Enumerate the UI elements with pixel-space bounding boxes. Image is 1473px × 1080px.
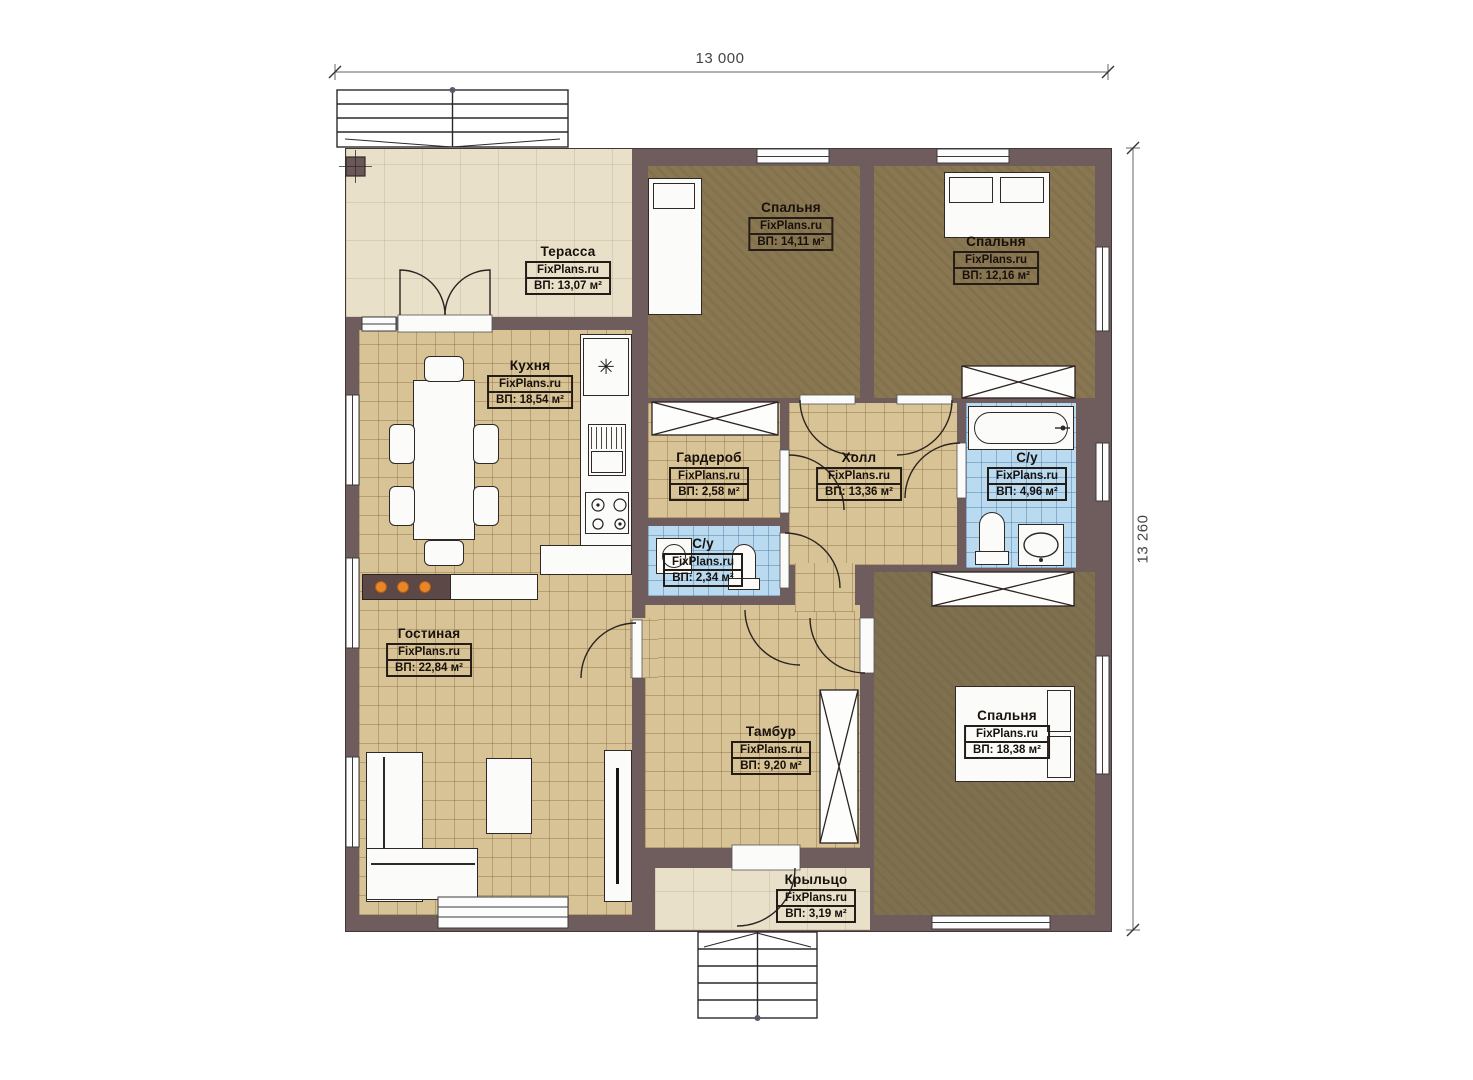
room-area: ВП: 4,96 м² — [989, 485, 1065, 499]
washbasin-icon — [1018, 524, 1064, 566]
room-label-vestibule: Тамбур FixPlans.ruВП: 9,20 м² — [731, 724, 811, 775]
brand-watermark: FixPlans.ru — [778, 891, 854, 907]
room-area: ВП: 9,20 м² — [733, 759, 809, 773]
room-name: С/у — [987, 450, 1067, 465]
room-area: ВП: 2,34 м² — [665, 571, 741, 585]
chair-icon — [473, 486, 499, 526]
room-info-box: FixPlans.ruВП: 13,07 м² — [525, 261, 611, 295]
room-label-bathroom: С/у FixPlans.ruВП: 4,96 м² — [987, 450, 1067, 501]
room-area: ВП: 2,58 м² — [671, 485, 747, 499]
chair-icon — [424, 356, 464, 382]
brand-watermark: FixPlans.ru — [733, 743, 809, 759]
room-name: Холл — [816, 450, 902, 465]
fridge-icon: ✳ — [583, 338, 629, 396]
dimension-height: 13 260 — [1135, 515, 1152, 564]
room-info-box: FixPlans.ruВП: 18,54 м² — [487, 375, 573, 409]
living-corridor-opening — [630, 618, 658, 678]
room-info-box: FixPlans.ruВП: 14,11 м² — [748, 217, 833, 251]
room-area: ВП: 13,07 м² — [527, 279, 609, 293]
room-name: Кухня — [487, 358, 573, 373]
room-name: Терасса — [525, 244, 611, 259]
room-info-box: FixPlans.ruВП: 22,84 м² — [386, 643, 472, 677]
room-info-box: FixPlans.ruВП: 2,34 м² — [663, 553, 743, 587]
room-name: Спальня — [748, 200, 833, 215]
stove-icon — [585, 492, 629, 534]
pillow-icon — [1047, 736, 1071, 778]
toilet-icon — [979, 512, 1005, 554]
bed-double — [944, 172, 1050, 238]
room-info-box: FixPlans.ruВП: 4,96 м² — [987, 467, 1067, 501]
room-label-porch: Крыльцо FixPlans.ruВП: 3,19 м² — [776, 872, 856, 923]
brand-watermark: FixPlans.ru — [665, 555, 741, 571]
bathtub-basin — [974, 412, 1068, 444]
room-name: Спальня — [964, 708, 1050, 723]
room-name: Спальня — [953, 234, 1039, 249]
brand-watermark: FixPlans.ru — [671, 469, 747, 485]
room-label-bedroom1: Спальня FixPlans.ruВП: 14,11 м² — [748, 200, 833, 251]
steps-icon — [698, 932, 817, 1021]
dining-table — [413, 380, 475, 540]
sofa-horizontal — [366, 848, 478, 900]
room-area: ВП: 3,19 м² — [778, 907, 854, 921]
room-name: С/у — [663, 536, 743, 551]
fireplace-icon — [362, 574, 452, 600]
dish-rack-icon — [591, 427, 623, 449]
floor-plan: ✳ — [0, 0, 1473, 1080]
room-name: Гостиная — [386, 626, 472, 641]
brand-watermark: FixPlans.ru — [489, 377, 571, 393]
toilet-tank — [975, 551, 1009, 565]
pillow-icon — [1047, 690, 1071, 732]
room-label-wc: С/у FixPlans.ruВП: 2,34 м² — [663, 536, 743, 587]
stairs-icon — [337, 87, 568, 147]
room-info-box: FixPlans.ruВП: 18,38 м² — [964, 725, 1050, 759]
chair-icon — [473, 424, 499, 464]
pillow-icon — [653, 183, 695, 209]
room-name: Гардероб — [669, 450, 749, 465]
room-area: ВП: 18,54 м² — [489, 393, 571, 407]
room-info-box: FixPlans.ruВП: 12,16 м² — [953, 251, 1039, 285]
room-area: ВП: 13,36 м² — [818, 485, 900, 499]
brand-watermark: FixPlans.ru — [818, 469, 900, 485]
coffee-table — [486, 758, 532, 834]
chair-icon — [389, 486, 415, 526]
sink-basin-icon — [591, 451, 623, 473]
sofa-seam — [371, 863, 475, 865]
brand-watermark: FixPlans.ru — [527, 263, 609, 279]
pillow-icon — [1000, 177, 1044, 203]
brand-watermark: FixPlans.ru — [966, 727, 1048, 743]
dimension-width: 13 000 — [696, 50, 745, 67]
room-info-box: FixPlans.ruВП: 3,19 м² — [776, 889, 856, 923]
snowflake-icon: ✳ — [584, 339, 628, 395]
room-label-bedroom3: Спальня FixPlans.ruВП: 18,38 м² — [964, 708, 1050, 759]
room-info-box: FixPlans.ruВП: 9,20 м² — [731, 741, 811, 775]
room-info-box: FixPlans.ruВП: 2,58 м² — [669, 467, 749, 501]
room-label-bedroom2: Спальня FixPlans.ruВП: 12,16 м² — [953, 234, 1039, 285]
bathtub-icon — [968, 406, 1074, 450]
room-label-wardrobe: Гардероб FixPlans.ruВП: 2,58 м² — [669, 450, 749, 501]
bed-single — [648, 178, 702, 315]
brand-watermark: FixPlans.ru — [388, 645, 470, 661]
chair-icon — [424, 540, 464, 566]
room-label-hall: Холл FixPlans.ruВП: 13,36 м² — [816, 450, 902, 501]
hall-corridor-opening — [795, 563, 855, 612]
room-name: Тамбур — [731, 724, 811, 739]
room-label-terrace: Терасса FixPlans.ruВП: 13,07 м² — [525, 244, 611, 295]
room-area: ВП: 12,16 м² — [955, 269, 1037, 283]
chair-icon — [389, 424, 415, 464]
tv-icon — [616, 768, 619, 884]
pillow-icon — [949, 177, 993, 203]
kitchen-counter-low — [540, 545, 632, 575]
room-area: ВП: 14,11 м² — [750, 235, 831, 249]
brand-watermark: FixPlans.ru — [750, 219, 831, 235]
hearth-cabinet — [450, 574, 538, 600]
room-area: ВП: 22,84 м² — [388, 661, 470, 675]
kitchen-sink-unit — [588, 424, 626, 476]
room-label-living: Гостиная FixPlans.ruВП: 22,84 м² — [386, 626, 472, 677]
room-area: ВП: 18,38 м² — [966, 743, 1048, 757]
brand-watermark: FixPlans.ru — [955, 253, 1037, 269]
room-info-box: FixPlans.ruВП: 13,36 м² — [816, 467, 902, 501]
room-label-kitchen: Кухня FixPlans.ruВП: 18,54 м² — [487, 358, 573, 409]
brand-watermark: FixPlans.ru — [989, 469, 1065, 485]
room-name: Крыльцо — [776, 872, 856, 887]
